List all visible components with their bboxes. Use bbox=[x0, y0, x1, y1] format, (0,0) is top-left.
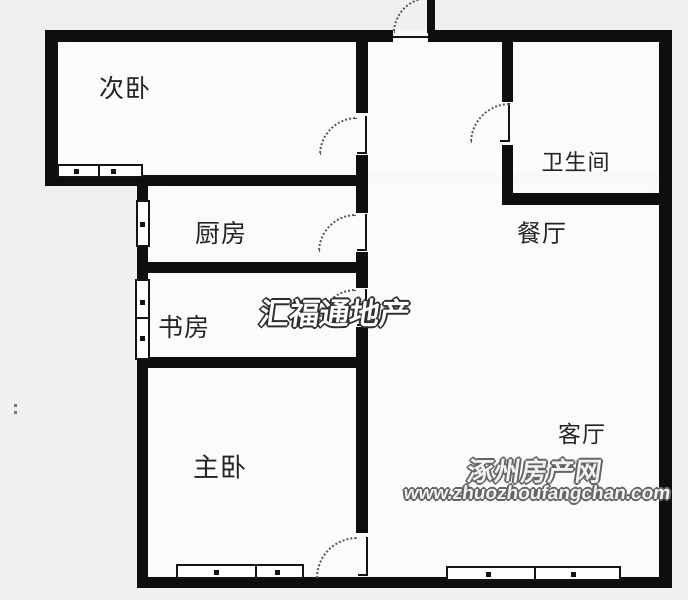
balcony-door-arc bbox=[393, 0, 429, 33]
watermark-site-url: www.zhuozhoufangchan.com bbox=[402, 483, 671, 505]
wall-left-upper bbox=[45, 30, 58, 186]
room-label-kitchen: 厨房 bbox=[195, 214, 247, 250]
room-label-secondary-bedroom: 次卧 bbox=[99, 69, 151, 105]
master-bedroom-door-leaf bbox=[366, 537, 368, 576]
window-living-room bbox=[446, 566, 621, 581]
scan-artifact-dot bbox=[14, 411, 17, 414]
wall-center-segment-3 bbox=[356, 252, 368, 288]
wall-center-segment-4 bbox=[356, 327, 368, 533]
room-label-bathroom: 卫生间 bbox=[541, 145, 610, 177]
wall-top-left bbox=[45, 30, 393, 42]
window-divider bbox=[98, 166, 100, 176]
balcony-door-threshold bbox=[393, 36, 428, 38]
secondary-bedroom-door-leaf bbox=[365, 116, 367, 154]
window-handle bbox=[214, 570, 219, 575]
room-label-master-bedroom: 主卧 bbox=[193, 448, 247, 485]
window-handle bbox=[140, 222, 145, 227]
window-master-bedroom bbox=[176, 564, 304, 579]
window-handle bbox=[74, 169, 79, 174]
window-handle bbox=[275, 570, 280, 575]
window-handle bbox=[486, 572, 491, 577]
wall-bathroom-bottom bbox=[502, 193, 672, 205]
window-divider bbox=[534, 568, 536, 579]
window-handle bbox=[111, 169, 116, 174]
wall-bathroom-left-upper bbox=[502, 42, 513, 102]
room-label-living-room: 客厅 bbox=[558, 415, 606, 449]
wall-center-segment-1 bbox=[356, 42, 368, 113]
secondary-bedroom-door-foot bbox=[357, 152, 366, 154]
wall-top-right bbox=[428, 30, 672, 42]
window-divider bbox=[137, 317, 148, 319]
kitchen-door-foot bbox=[357, 249, 366, 251]
window-study bbox=[135, 279, 150, 360]
window-divider bbox=[255, 566, 257, 577]
window-handle bbox=[140, 336, 145, 341]
master-bedroom-door-foot bbox=[358, 574, 367, 576]
wall-study-bottom bbox=[137, 357, 368, 368]
kitchen-door-leaf bbox=[365, 214, 367, 251]
window-secondary-bedroom bbox=[57, 164, 143, 178]
floorplan-image: { "floorplan": { "rooms": [ { "name": "s… bbox=[0, 0, 688, 600]
scan-artifact-dot bbox=[14, 404, 17, 407]
room-label-dining-room: 餐厅 bbox=[517, 214, 567, 249]
room-label-study: 书房 bbox=[158, 308, 210, 344]
window-kitchen bbox=[136, 200, 150, 247]
wall-center-segment-2 bbox=[356, 155, 368, 213]
watermark-agency: 汇福通地产 bbox=[257, 289, 413, 333]
window-handle bbox=[140, 300, 145, 305]
window-handle bbox=[571, 572, 576, 577]
wall-kitchen-bottom bbox=[137, 262, 368, 273]
